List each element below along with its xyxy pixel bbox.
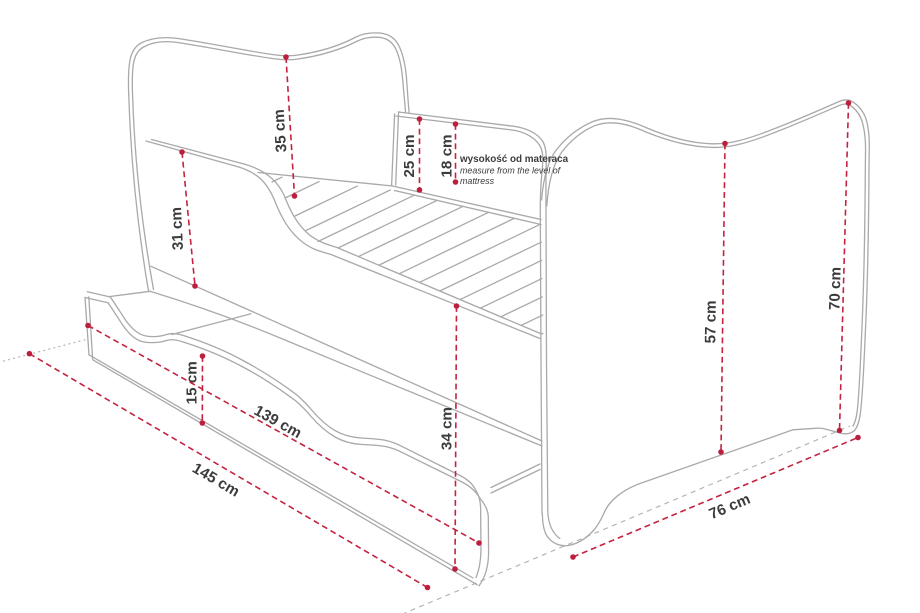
svg-text:measure from the level of: measure from the level of <box>460 165 562 175</box>
svg-text:70 cm: 70 cm <box>826 267 844 311</box>
svg-text:35 cm: 35 cm <box>271 109 291 153</box>
svg-text:31 cm: 31 cm <box>168 207 187 251</box>
svg-text:34 cm: 34 cm <box>439 407 456 450</box>
svg-text:57 cm: 57 cm <box>702 300 720 343</box>
svg-text:wysokość od materaca: wysokość od materaca <box>459 154 569 165</box>
svg-text:25 cm: 25 cm <box>401 134 418 177</box>
svg-text:mattress: mattress <box>460 176 495 186</box>
svg-text:18 cm: 18 cm <box>439 134 456 177</box>
